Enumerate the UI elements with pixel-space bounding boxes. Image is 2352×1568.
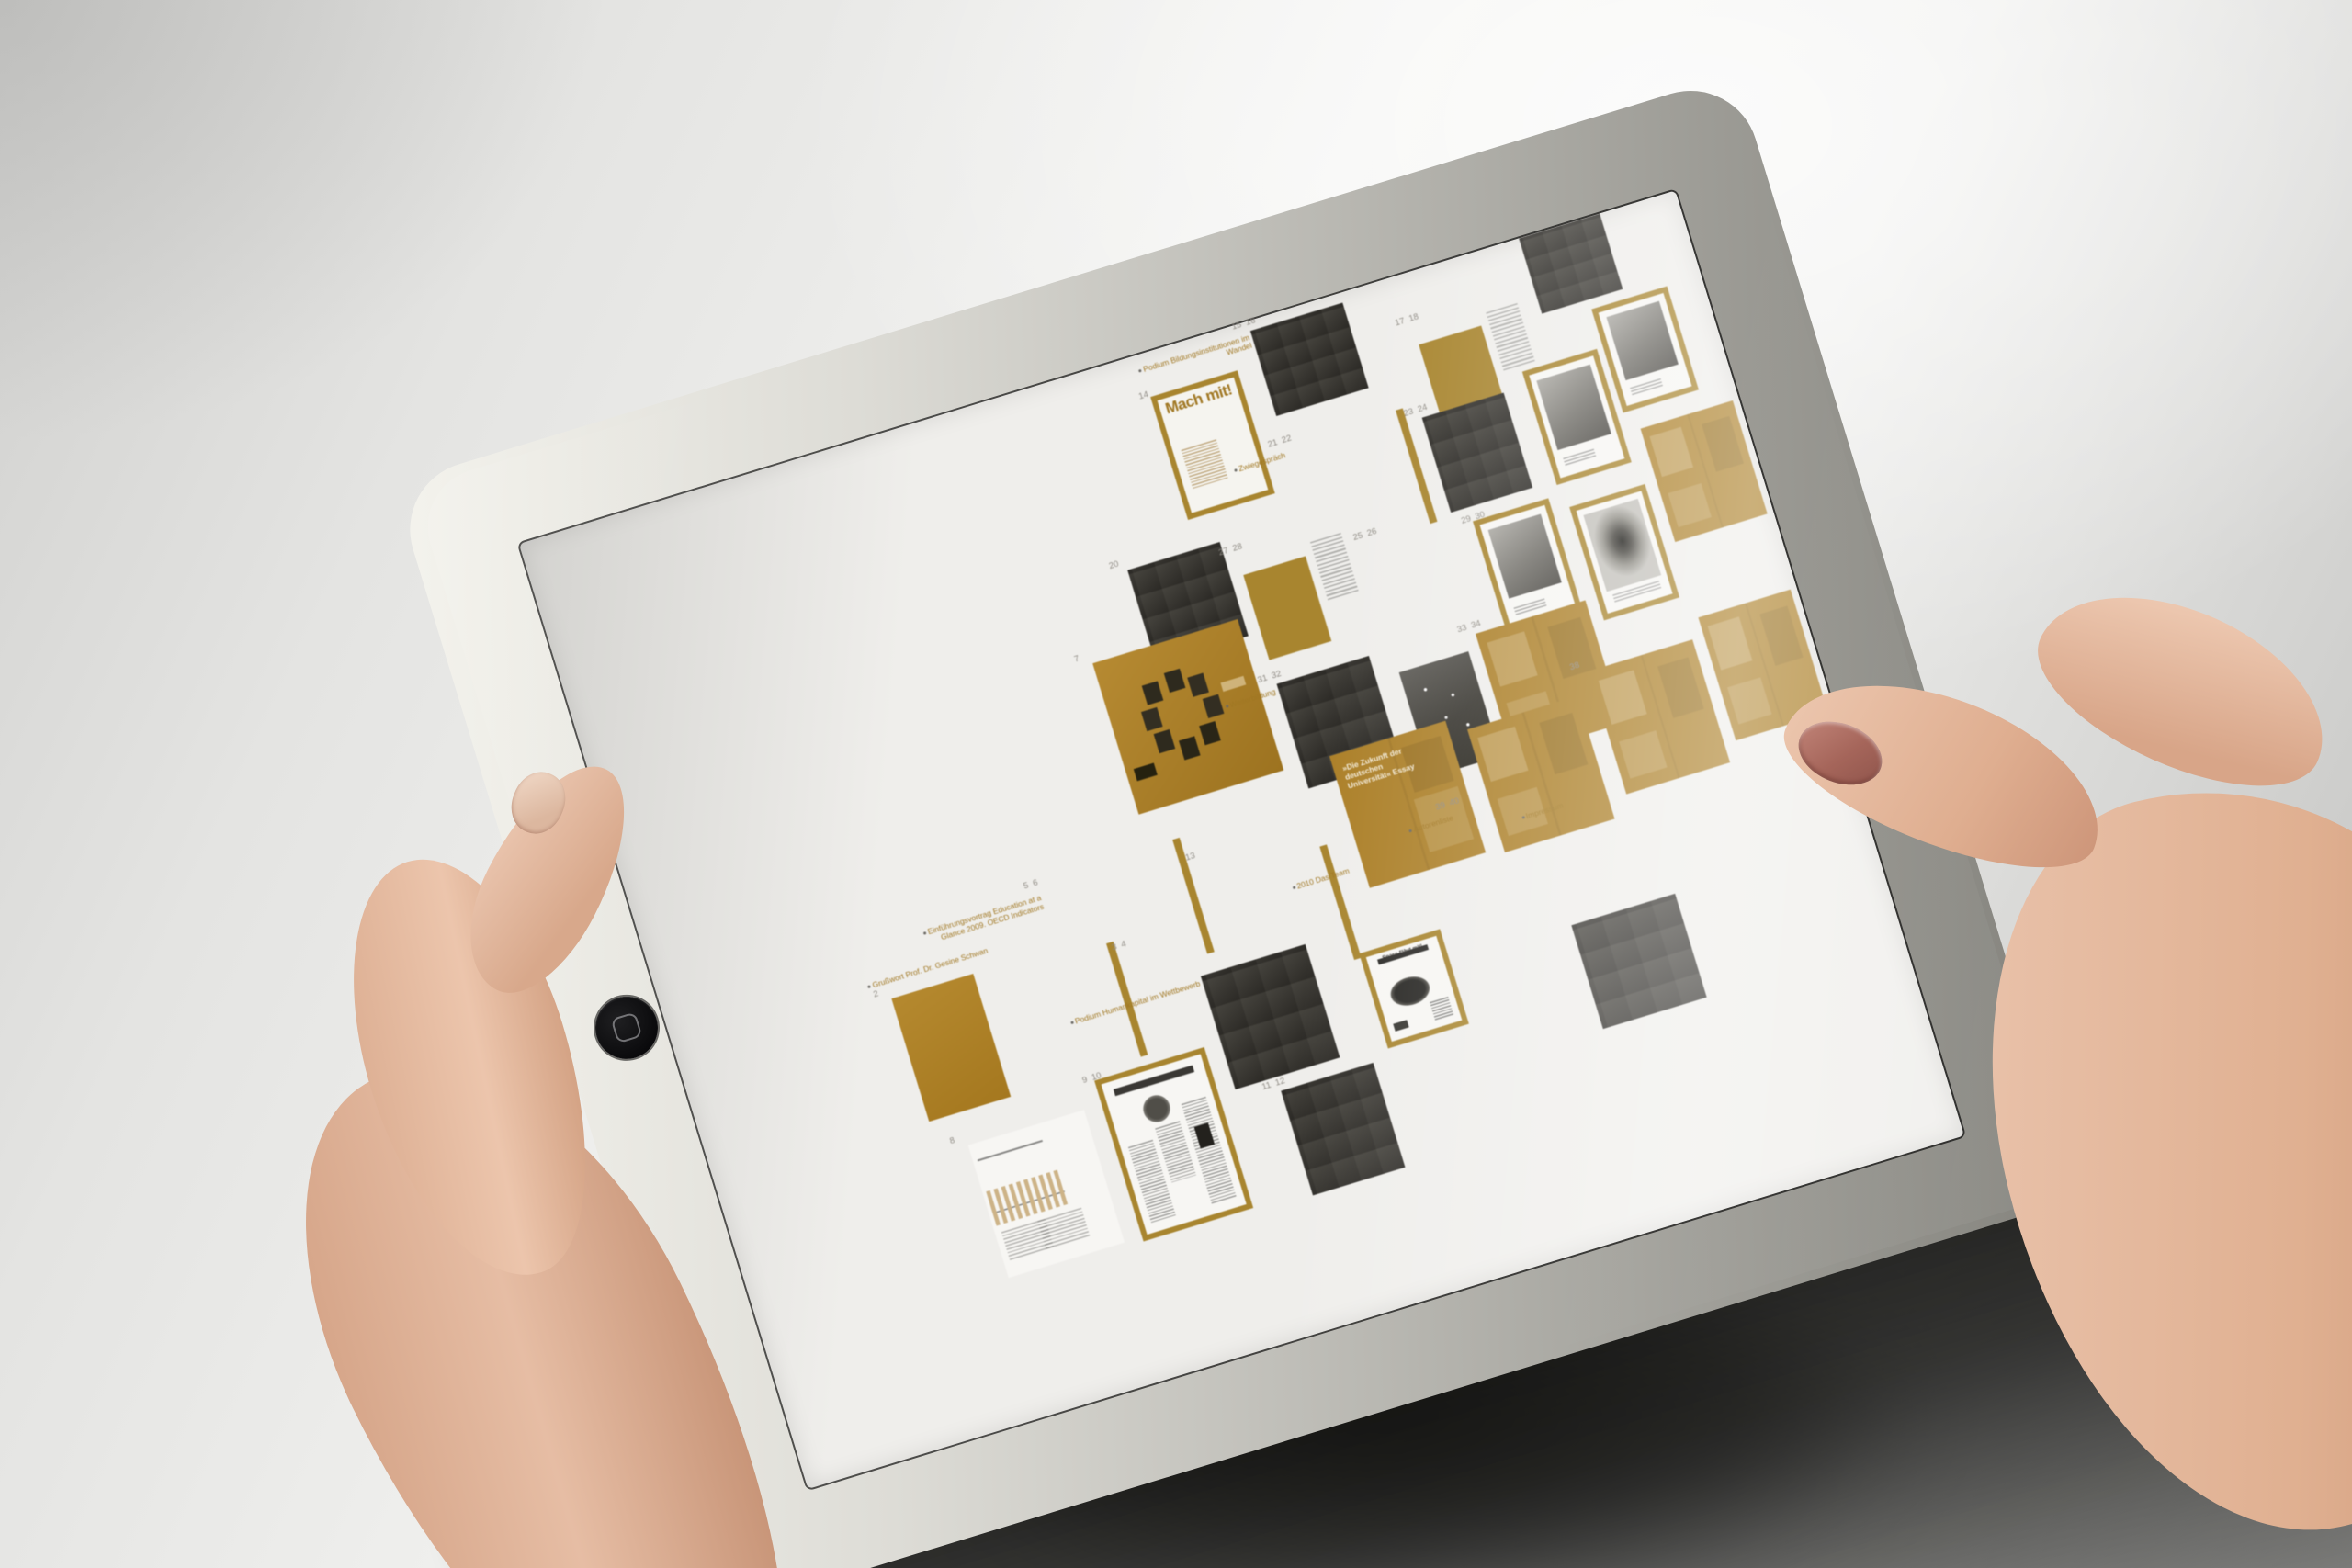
page-thumb-tsp-15[interactable]: Podium Bildungsinstitutionen im Wandel15… [1250, 302, 1369, 415]
page-thumb-tsp-40[interactable] [1571, 893, 1707, 1029]
page-number: 14 [1137, 389, 1149, 402]
page-heading: »Die Zukunft der deutschen Universität« … [1341, 744, 1419, 791]
page-thumb-tsp-11[interactable]: 11 12 [1281, 1063, 1405, 1195]
page-number: 20 [1108, 558, 1120, 571]
page-number: 29 30 [1460, 509, 1486, 525]
page-number: 33 34 [1456, 618, 1482, 635]
page-number: 27 28 [1217, 541, 1243, 558]
page-number: 9 10 [1081, 1071, 1102, 1087]
page-thumb-ts-21[interactable]: Zwiegespräch21 22 [1286, 421, 1408, 544]
page-thumb-or-38[interactable]: 38 [1589, 640, 1730, 795]
page-number: 8 [948, 1135, 955, 1146]
page-thumb-orf-2[interactable]: 2 [892, 974, 1011, 1122]
page-thumb-chart-8[interactable]: 8 [968, 1111, 1125, 1279]
page-thumb-ts-25[interactable]: 25 26 [1372, 515, 1487, 637]
page-number: 17 18 [1394, 311, 1419, 328]
page-thumb-ph-27[interactable]: 27 28 [1238, 525, 1374, 661]
page-number: 31 32 [1257, 669, 1283, 685]
page-thumb-machmit-14[interactable]: Mach mit!14 [1150, 371, 1274, 521]
photo-scene: Mach mit!14Podium Bildungsinstitutionen … [0, 0, 2352, 1568]
page-number: 23 24 [1402, 402, 1428, 419]
page-number: 13 [1184, 851, 1196, 863]
page-number: 7 [1073, 653, 1080, 664]
page-thumb-ts-39[interactable] [1463, 914, 1584, 1037]
page-thumb-news-9[interactable]: 9 10 [1094, 1047, 1253, 1241]
page-number: 5 6 [1023, 878, 1039, 892]
page-number: 21 22 [1267, 434, 1293, 450]
page-heading: Mach mit! [1164, 381, 1238, 416]
